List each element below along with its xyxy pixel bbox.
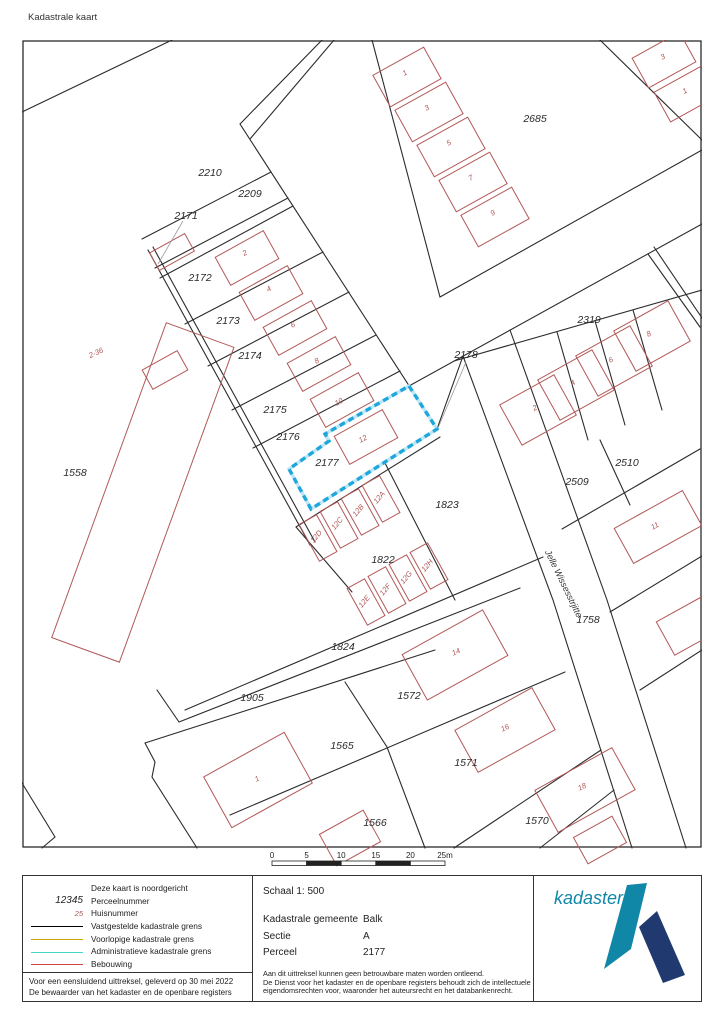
parcel-label-2175: 2175 <box>262 404 287 416</box>
parcel-label-2173: 2173 <box>215 315 240 327</box>
disclaimer-text: Aan dit uittreksel kunnen geen betrouwba… <box>263 970 531 996</box>
legend-sample <box>23 959 91 969</box>
parcel-label-2509: 2509 <box>564 476 589 488</box>
legend-label: Huisnummer <box>91 908 252 918</box>
parcel-label-1823: 1823 <box>435 499 459 511</box>
detail-value: 2177 <box>363 947 385 964</box>
legend-item: Bebouwing <box>23 958 252 971</box>
detail-value: A <box>363 931 370 948</box>
legend-sample <box>23 946 91 956</box>
parcel-label-1570: 1570 <box>525 815 549 827</box>
legend-footnotes: Voor een eensluidend uittreksel, gelever… <box>29 976 233 998</box>
scale-tick-label: 15 <box>371 851 380 860</box>
detail-row: Perceel2177 <box>263 947 385 964</box>
parcel-label-2319: 2319 <box>576 314 601 326</box>
cadastral-map: 2685221022092171217221732174217521762177… <box>22 40 702 875</box>
parcel-label-1905: 1905 <box>240 692 264 704</box>
legend-sample: 25 <box>23 908 91 918</box>
scale-text: Schaal 1: 500 <box>263 886 324 897</box>
parcel-label-2209: 2209 <box>237 188 262 200</box>
legend-label: Deze kaart is noordgericht <box>91 883 252 893</box>
legend-label: Vastgestelde kadastrale grens <box>91 921 252 931</box>
logo-navy-blade-icon <box>639 911 685 983</box>
legend-line-sample <box>31 939 83 940</box>
scale-tick-label: 5 <box>304 851 309 860</box>
scale-tick-label: 20 <box>406 851 415 860</box>
parcel-label-2171: 2171 <box>173 210 197 222</box>
parcel-label-1566: 1566 <box>363 817 387 829</box>
legend-label: Perceelnummer <box>91 896 252 906</box>
scale-tick-label: 25m <box>437 851 453 860</box>
parcel-label-1571: 1571 <box>454 757 477 769</box>
parcel-label-2210: 2210 <box>197 167 222 179</box>
detail-label: Kadastrale gemeente <box>263 914 363 931</box>
disclaimer-line: eigendomsrechten voor, waaronder het aut… <box>263 987 531 996</box>
parcel-label-1572: 1572 <box>397 690 421 702</box>
footnote-delivery: Voor een eensluidend uittreksel, gelever… <box>29 976 233 987</box>
kadaster-logo-mark <box>589 876 699 1001</box>
legend-label: Voorlopige kadastrale grens <box>91 934 252 944</box>
detail-label: Perceel <box>263 947 363 964</box>
scale-bar: 0510152025m <box>270 851 453 866</box>
parcel-details-table: Kadastrale gemeenteBalkSectieAPerceel217… <box>263 914 385 964</box>
detail-value: Balk <box>363 914 382 931</box>
parcel-label-2685: 2685 <box>522 113 547 125</box>
parcel-label-2176: 2176 <box>275 431 300 443</box>
footer-panel: Deze kaart is noordgericht12345Perceelnu… <box>22 875 702 1002</box>
legend-sample <box>23 934 91 944</box>
detail-label: Sectie <box>263 931 363 948</box>
parcel-label-2172: 2172 <box>187 272 212 284</box>
parcel-label-1558: 1558 <box>63 467 87 479</box>
legend-sample: 12345 <box>23 895 91 906</box>
parcel-label-2174: 2174 <box>237 350 262 362</box>
parcel-label-2177: 2177 <box>314 457 340 469</box>
scale-tick-label: 10 <box>337 851 346 860</box>
legend-line-sample <box>31 964 83 965</box>
legend-label: Administratieve kadastrale grens <box>91 946 252 956</box>
legend-divider <box>23 972 252 973</box>
legend-rows: Deze kaart is noordgericht12345Perceelnu… <box>23 882 252 970</box>
legend-item: Administratieve kadastrale grens <box>23 945 252 958</box>
details-section: Schaal 1: 500 Kadastrale gemeenteBalkSec… <box>253 876 534 1001</box>
detail-row: SectieA <box>263 931 385 948</box>
legend-item: Voorlopige kadastrale grens <box>23 932 252 945</box>
legend-item: 12345Perceelnummer <box>23 895 252 908</box>
legend-item: 25Huisnummer <box>23 907 252 920</box>
parcel-label-2510: 2510 <box>614 457 639 469</box>
legend-line-sample <box>31 952 83 953</box>
footnote-keeper: De bewaarder van het kadaster en de open… <box>29 987 233 998</box>
parcel-label-1824: 1824 <box>331 641 355 653</box>
detail-row: Kadastrale gemeenteBalk <box>263 914 385 931</box>
parcel-label-1565: 1565 <box>330 740 354 752</box>
legend-item: Deze kaart is noordgericht <box>23 882 252 895</box>
parcel-label-1822: 1822 <box>371 554 395 566</box>
legend-line-sample <box>31 926 83 927</box>
legend-section: Deze kaart is noordgericht12345Perceelnu… <box>23 876 253 1001</box>
parcel-label-2178: 2178 <box>453 349 478 361</box>
page-title: Kadastrale kaart <box>28 12 97 23</box>
kadaster-logo: kadaster <box>534 876 701 1001</box>
legend-label: Bebouwing <box>91 959 252 969</box>
legend-sample <box>23 921 91 931</box>
legend-item: Vastgestelde kadastrale grens <box>23 920 252 933</box>
scale-tick-label: 0 <box>270 851 275 860</box>
